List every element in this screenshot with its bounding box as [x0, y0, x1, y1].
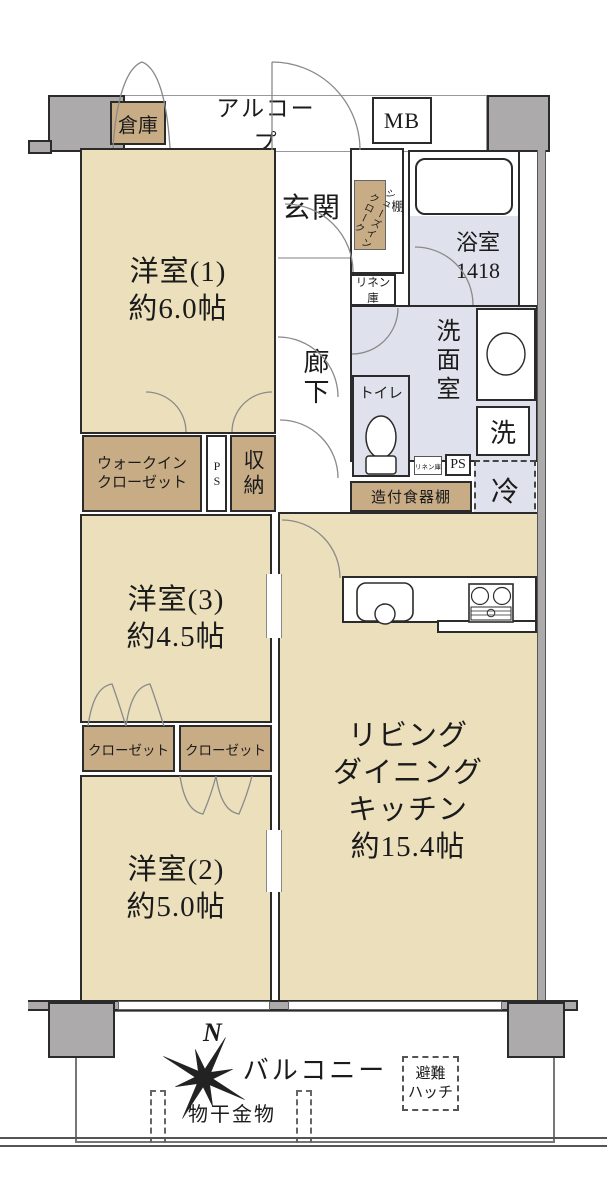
corridor-text: 廊下: [300, 348, 329, 408]
wall-foot-top-left: [28, 140, 52, 154]
room2-size: 約5.0帖: [126, 889, 225, 926]
built-in-cupboard: 造付食器棚: [350, 481, 472, 512]
walk-in-closet: ウォークイン クローゼット: [82, 435, 202, 512]
balcony-text: バルコニー: [243, 1050, 387, 1087]
toilet-room: トイレ: [352, 375, 410, 477]
alcove-label: アルコープ: [206, 106, 326, 140]
bath-size: 1418: [456, 257, 500, 285]
bathroom-label: 浴室 1418: [440, 226, 516, 288]
sliding-opening-room3: [266, 574, 282, 638]
toilet-text: トイレ: [359, 382, 403, 403]
washroom-text: 洗面室: [432, 318, 458, 405]
fridge-text: 冷: [491, 470, 519, 510]
genkan-label: 玄関: [282, 186, 346, 220]
closet-right: クローゼット: [179, 725, 272, 772]
linen-text: リネン庫: [352, 274, 394, 306]
room3-name: 洋室(3): [128, 582, 225, 619]
linen-small-box: リネン庫: [414, 456, 442, 475]
north-text: N: [203, 1018, 222, 1047]
cupboard-text: 造付食器棚: [371, 486, 451, 507]
kitchen-counter: [342, 576, 537, 623]
ps-box-right: PS: [445, 454, 471, 476]
ldk-label: リビング ダイニング キッチン 約15.4帖: [300, 712, 516, 872]
wall-right: [537, 150, 546, 1002]
genkan-text: 玄関: [282, 193, 342, 224]
shelf-text: 棚: [390, 200, 404, 213]
room1-name: 洋室(1): [130, 254, 227, 291]
ldk-line2: ダイニング: [333, 755, 483, 792]
shuno-closet: 収納: [230, 435, 276, 512]
door-arc: [280, 420, 338, 478]
laundry-bracket-left: [150, 1090, 166, 1143]
ps-right-text: PS: [450, 457, 466, 473]
storage-box: 倉庫: [110, 101, 166, 145]
laundry-text: 物干金物: [188, 1098, 276, 1127]
washer-space: 洗: [476, 406, 530, 456]
linen-small-text: リネン庫: [415, 461, 441, 471]
wic-line2: クローゼット: [97, 474, 187, 493]
evacuation-hatch: 避難 ハッチ: [402, 1056, 459, 1111]
ldk-line3: キッチン: [348, 792, 468, 829]
kitchen-counter-return: [437, 620, 537, 633]
laundry-bracket-right: [296, 1090, 312, 1143]
floorplan: アルコープ 倉庫 MB 洋室(1) 約6.0帖 玄関 シューズイン クローク 棚…: [0, 0, 607, 1200]
room-yoshitsu-2: 洋室(2) 約5.0帖: [80, 775, 272, 1002]
closet-left-text: クローゼット: [88, 739, 169, 759]
bath-name: 浴室: [456, 229, 500, 257]
washroom-label: 洗面室: [428, 318, 463, 405]
ldk-size: 約15.4帖: [351, 829, 466, 866]
window-ldk: [288, 1001, 502, 1010]
closet-left: クローゼット: [82, 725, 175, 772]
meter-box: MB: [372, 97, 432, 144]
sliding-opening-room2: [266, 830, 282, 892]
balcony-label: バルコニー: [240, 1052, 390, 1084]
corridor-label: 廊下: [296, 348, 333, 408]
room1-size: 約6.0帖: [128, 291, 227, 328]
window-room2: [118, 1001, 270, 1010]
pillar-bottom-left: [48, 1002, 115, 1058]
shoes-in-closet-box: シューズイン クローク: [354, 180, 386, 250]
room-yoshitsu-1: 洋室(1) 約6.0帖: [80, 148, 276, 434]
room2-name: 洋室(2): [128, 852, 225, 889]
shuno-text: 収納: [238, 449, 268, 499]
wic-line1: ウォークイン: [97, 455, 187, 474]
mb-label: MB: [384, 108, 420, 134]
hatch-line2: ハッチ: [408, 1084, 453, 1103]
room-yoshitsu-3: 洋室(3) 約4.5帖: [80, 514, 272, 723]
vanity: [476, 308, 536, 401]
laundry-hardware-label: 物干金物: [168, 1100, 296, 1124]
alcove-text: アルコープ: [206, 89, 326, 157]
ldk-line1: リビング: [348, 718, 468, 755]
ps-box-left: PS: [206, 435, 227, 512]
hatch-line1: 避難: [415, 1065, 445, 1084]
bathtub: [415, 158, 513, 215]
washer-text: 洗: [490, 413, 516, 450]
shelf-label: 棚: [389, 200, 406, 213]
balcony-outer-rail: [0, 1137, 607, 1147]
storage-label: 倉庫: [118, 109, 158, 138]
wall-block-top-right: [487, 95, 550, 152]
closet-right-text: クローゼット: [185, 739, 266, 759]
toilet-label: トイレ: [354, 382, 408, 403]
pillar-bottom-right: [507, 1002, 565, 1058]
wall-arm-bottom-right: [563, 1000, 578, 1011]
linen-closet: リネン庫: [350, 274, 396, 306]
fridge-space: 冷: [474, 460, 536, 520]
north-label: N: [203, 1018, 222, 1048]
room3-size: 約4.5帖: [126, 619, 225, 656]
ps-left-text: PS: [209, 459, 224, 489]
